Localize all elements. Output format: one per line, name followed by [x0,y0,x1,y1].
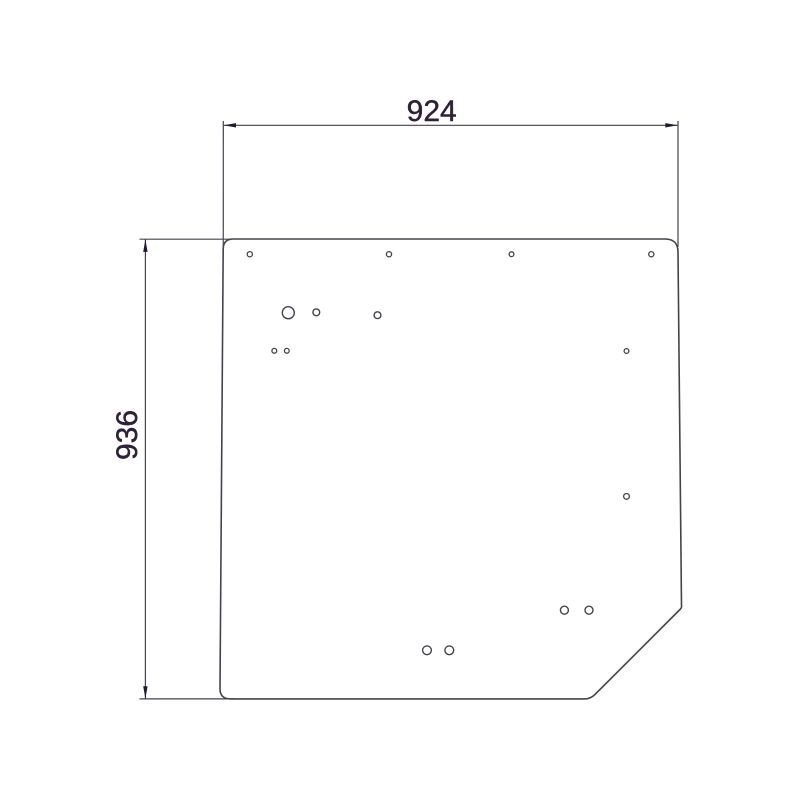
svg-text:936: 936 [111,410,144,460]
svg-text:924: 924 [407,95,457,128]
